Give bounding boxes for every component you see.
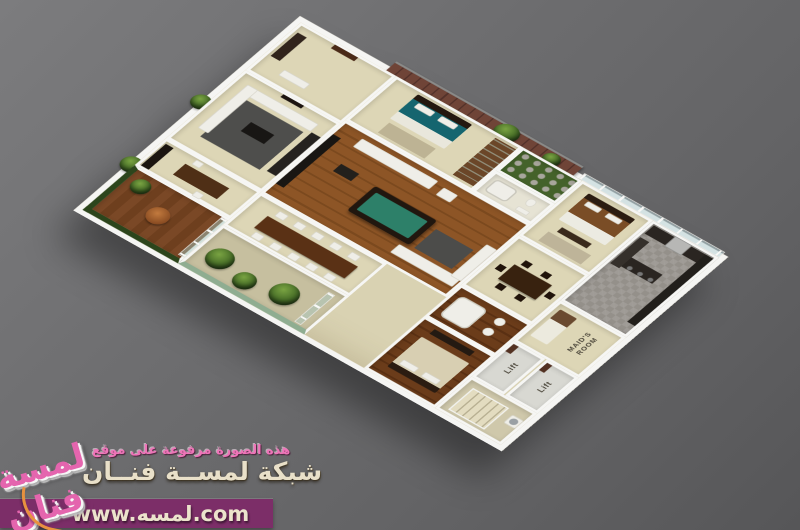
sink	[515, 206, 531, 216]
dining-chair	[328, 241, 343, 251]
family-coffee-table	[333, 164, 359, 181]
balcony-glass-rail	[294, 292, 335, 325]
staircase	[448, 388, 509, 430]
balcony-plant	[227, 269, 262, 293]
floorplan: MAID'S ROOM Lift Lift	[73, 16, 728, 451]
pool-table	[347, 186, 437, 245]
dining-chair	[268, 242, 283, 252]
maids-room-label: MAID'S ROOM	[565, 330, 603, 358]
entry-wardrobe	[271, 33, 307, 61]
dinette-chair	[540, 271, 552, 279]
screenshot-canvas: MAID'S ROOM Lift Lift هذه الصورة مرفوعة …	[0, 0, 800, 530]
pillow	[604, 213, 623, 225]
dining-chair	[310, 231, 325, 241]
family-ottoman	[436, 188, 459, 203]
dining-chair	[250, 232, 265, 242]
watermark-line1: هذه الصورة مرفوعة على موقع	[92, 443, 290, 458]
dining-chair	[286, 252, 301, 262]
nook-chair	[191, 160, 204, 169]
dinette-chair	[521, 260, 533, 268]
watermark-line2: شبكة لمســة فنــان	[82, 457, 322, 486]
terrace-rattan-chair	[140, 204, 175, 228]
dinette-chair	[494, 283, 506, 291]
balcony-plant	[262, 279, 306, 310]
dining-chair	[304, 262, 319, 272]
bathtub	[483, 179, 519, 203]
master-bathtub	[438, 295, 488, 330]
lift-right-label: Lift	[535, 379, 557, 395]
terrace-plant	[125, 176, 155, 197]
twin-sink	[480, 326, 496, 337]
washer	[503, 415, 524, 430]
pillow	[421, 372, 442, 385]
balcony-plant	[199, 244, 241, 273]
dining-chair	[322, 272, 337, 282]
bar-cabinet	[141, 144, 174, 170]
twin-sink	[492, 316, 508, 327]
lift-door-jamb	[539, 363, 553, 373]
pillow	[399, 359, 420, 372]
pillow	[414, 103, 436, 117]
pool-table-felt	[356, 192, 427, 238]
entry-bench	[278, 70, 310, 90]
pillow	[437, 116, 459, 130]
site-logo: لمسة فنان لمسة فنان	[0, 432, 110, 530]
entry-door	[331, 45, 358, 62]
toilet	[523, 198, 538, 209]
dining-chair	[274, 211, 289, 221]
dinette-chair	[514, 294, 526, 302]
dining-chair	[346, 252, 361, 262]
dining-chair	[292, 221, 307, 231]
pillow	[584, 201, 603, 213]
dinette-chair	[544, 291, 556, 300]
lift-left-label: Lift	[501, 360, 523, 376]
lift-door-jamb	[505, 344, 519, 354]
